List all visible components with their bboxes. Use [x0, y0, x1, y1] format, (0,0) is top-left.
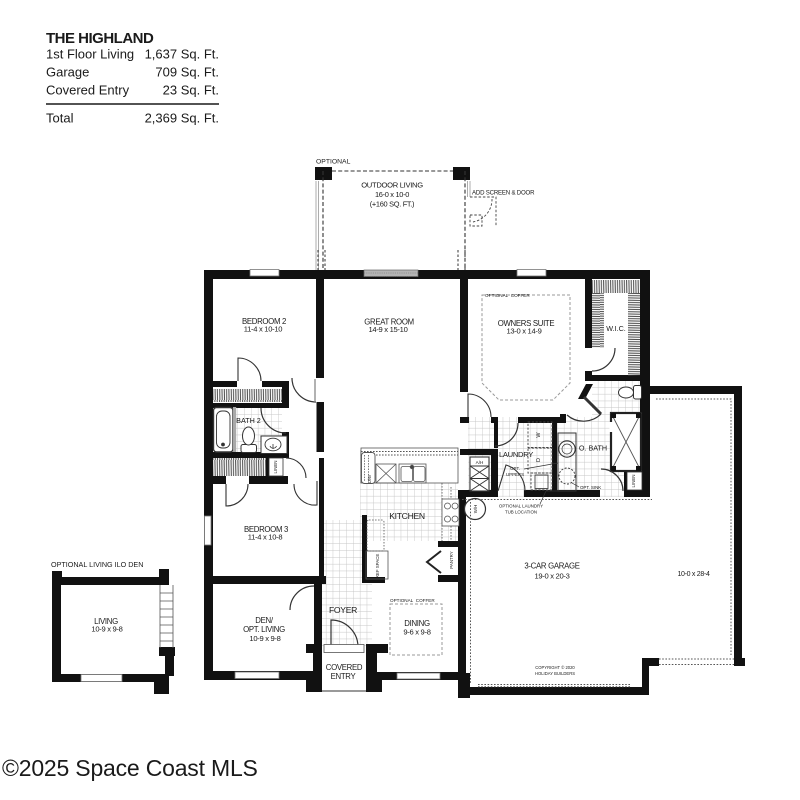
- svg-text:OUTDOOR LIVING: OUTDOOR LIVING: [361, 181, 423, 190]
- svg-text:709 Sq. Ft.: 709 Sq. Ft.: [155, 65, 219, 80]
- svg-text:10-9 x 9-8: 10-9 x 9-8: [249, 634, 280, 643]
- svg-text:Covered Entry: Covered Entry: [46, 83, 130, 98]
- svg-text:OPTIONAL: OPTIONAL: [316, 159, 351, 166]
- svg-text:OPT. SINK: OPT. SINK: [580, 485, 601, 490]
- svg-text:COPYRIGHT © 2020: COPYRIGHT © 2020: [535, 665, 575, 670]
- svg-text:13-0 x 14-9: 13-0 x 14-9: [506, 327, 541, 336]
- svg-text:OPTIONAL LAUNDRY: OPTIONAL LAUNDRY: [499, 504, 543, 509]
- svg-text:OPT. LIVING: OPT. LIVING: [243, 625, 285, 634]
- svg-text:D: D: [536, 458, 542, 462]
- svg-text:KITCHEN: KITCHEN: [389, 511, 425, 521]
- svg-text:D/W: D/W: [367, 475, 372, 483]
- svg-text:W/H: W/H: [473, 505, 478, 514]
- svg-text:10-0 x 28-4: 10-0 x 28-4: [677, 571, 710, 578]
- svg-text:11-4 x 10-10: 11-4 x 10-10: [244, 325, 283, 334]
- svg-text:FOYER: FOYER: [329, 605, 357, 615]
- svg-text:DEN/: DEN/: [255, 616, 274, 625]
- svg-text:THE HIGHLAND: THE HIGHLAND: [46, 30, 154, 47]
- svg-text:LINEN: LINEN: [273, 461, 278, 474]
- svg-text:A/H: A/H: [476, 460, 484, 465]
- svg-text:11-4 x 10-8: 11-4 x 10-8: [248, 533, 283, 542]
- svg-text:16-0 x 10-0: 16-0 x 10-0: [375, 190, 409, 199]
- svg-text:19-0 x 20-3: 19-0 x 20-3: [534, 572, 569, 581]
- svg-text:PANTRY: PANTRY: [449, 551, 454, 568]
- svg-text:23 Sq. Ft.: 23 Sq. Ft.: [163, 83, 219, 98]
- svg-text:14-9 x 15-10: 14-9 x 15-10: [368, 325, 407, 334]
- svg-text:O. BATH: O. BATH: [579, 444, 607, 453]
- svg-text:HOLIDAY BUILDERS: HOLIDAY BUILDERS: [535, 671, 575, 676]
- svg-text:LINEN: LINEN: [631, 475, 636, 488]
- svg-text:W.I.C.: W.I.C.: [606, 324, 626, 333]
- svg-text:W: W: [536, 432, 542, 438]
- svg-text:3-CAR GARAGE: 3-CAR GARAGE: [524, 562, 579, 571]
- svg-text:OPTIONAL COFFER: OPTIONAL COFFER: [485, 293, 530, 298]
- svg-text:ADD SCREEN & DOOR: ADD SCREEN & DOOR: [472, 190, 535, 197]
- svg-text:TUB LOCATION: TUB LOCATION: [505, 510, 537, 515]
- svg-text:1st Floor Living: 1st Floor Living: [46, 47, 134, 62]
- svg-text:COVERED: COVERED: [326, 663, 363, 672]
- svg-text:1,637 Sq. Ft.: 1,637 Sq. Ft.: [145, 47, 219, 62]
- svg-text:2,369 Sq. Ft.: 2,369 Sq. Ft.: [145, 111, 219, 126]
- svg-text:Garage: Garage: [46, 65, 89, 80]
- svg-text:OPTIONAL COFFER: OPTIONAL COFFER: [390, 598, 435, 603]
- svg-text:(+160 SQ. FT.): (+160 SQ. FT.): [370, 200, 414, 209]
- svg-text:©2025 Space Coast MLS: ©2025 Space Coast MLS: [2, 755, 258, 781]
- svg-text:BATH 2: BATH 2: [236, 416, 261, 425]
- svg-text:REF SPACE: REF SPACE: [375, 554, 380, 579]
- svg-text:Total: Total: [46, 111, 74, 126]
- svg-text:9-6 x 9-8: 9-6 x 9-8: [403, 628, 430, 637]
- svg-text:10-9 x 9-8: 10-9 x 9-8: [91, 625, 122, 634]
- svg-text:ENTRY: ENTRY: [331, 672, 357, 681]
- svg-text:OPTIONAL LIVING ILO DEN: OPTIONAL LIVING ILO DEN: [51, 560, 143, 569]
